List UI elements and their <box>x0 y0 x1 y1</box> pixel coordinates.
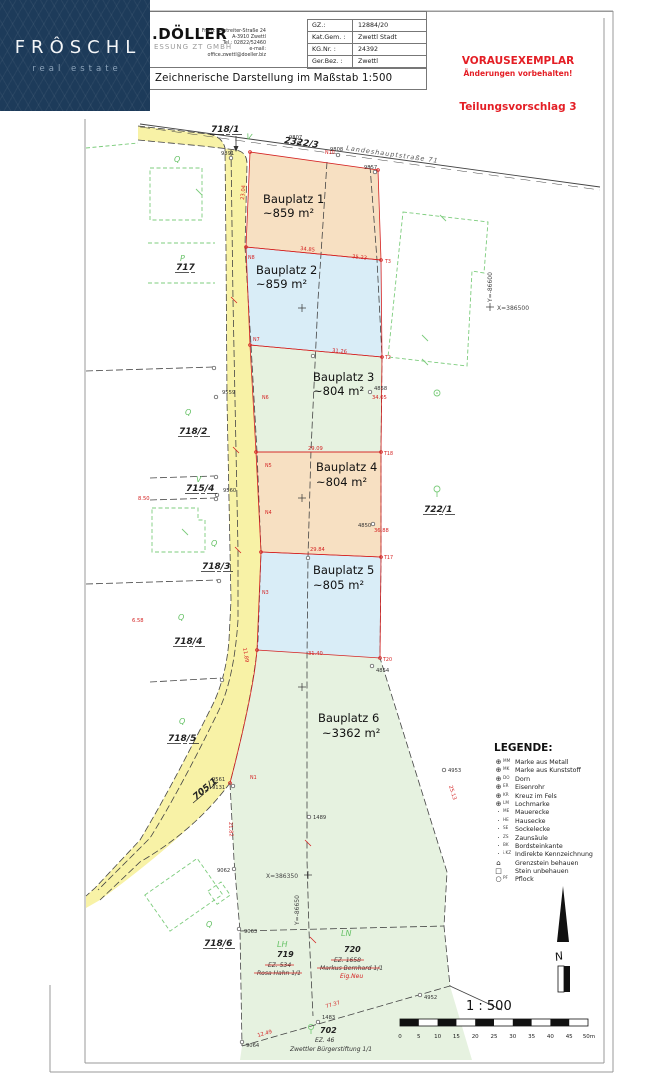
froeschl-logo: FRÔSCHL real estate <box>0 0 150 111</box>
tick-40: 40 <box>547 1034 554 1040</box>
tick-30: 30 <box>509 1034 516 1040</box>
ez-719: EZ. 534 <box>268 962 291 969</box>
cadastral-map: Landeshauptstraße 71 Bauplatz 1 ~859 m² … <box>0 0 663 1080</box>
legend-item: ⊕KRKreuz im Fels <box>494 792 619 800</box>
legend-label: Sockelecke <box>515 826 550 833</box>
legend-title: LEGENDE: <box>494 742 619 754</box>
pt-1489: 1489 <box>313 815 326 821</box>
npt-n5: N5 <box>265 463 272 469</box>
legend-code: ME <box>503 808 515 813</box>
fence-post-icon: · <box>494 834 503 842</box>
plot1-area: ~859 m² <box>263 206 314 220</box>
pt-4953: 4953 <box>448 768 461 774</box>
legend-item: ·ZSZaunsäule <box>494 834 619 842</box>
sheet-top-line <box>426 11 613 12</box>
legend-label: Grenzstein behauen <box>515 860 578 867</box>
plot6-name: Bauplatz 6 <box>318 711 379 725</box>
legend-item: ⊕DODorn <box>494 775 619 783</box>
npt-n4: N4 <box>265 510 272 516</box>
corner-socle-icon: · <box>494 825 503 833</box>
npt-n3: N3 <box>262 590 269 596</box>
marker-hole-icon: ⊕ <box>494 800 503 808</box>
legend-label: Kreuz im Fels <box>515 793 557 800</box>
veg-q4: Q <box>178 613 184 622</box>
pt-9560: 9560 <box>223 488 236 494</box>
veg-q1: Q <box>174 155 180 164</box>
table-row: GZ.: 12884/20 <box>308 20 427 32</box>
legend-label: Marke aus Kunststoff <box>515 767 581 774</box>
tick-15: 15 <box>453 1034 460 1040</box>
parcel-718-1: 718/1 <box>211 125 239 135</box>
pt-9131: 9131 <box>212 785 225 791</box>
dim-25-13: 25.13 <box>447 785 457 801</box>
legend-item: ⊕EREisenrohr <box>494 783 619 791</box>
corner-wall-icon: · <box>494 808 503 816</box>
veg-lh: LH <box>277 940 287 949</box>
dim-8-50: 8.50 <box>138 496 150 502</box>
legend-item: ⊕LMLochmarke <box>494 800 619 808</box>
plot5-area: ~805 m² <box>313 578 364 592</box>
marker-spike-icon: ⊕ <box>494 775 503 783</box>
dim-36-88: 36.88 <box>374 528 389 534</box>
plot4-name: Bauplatz 4 <box>316 460 377 474</box>
legend-item: ·MEMauerecke <box>494 808 619 816</box>
parcel-720: 720 <box>344 945 361 954</box>
legend-code: DO <box>503 775 515 780</box>
legend-label: Bordsteinkante <box>515 843 563 850</box>
title-block: .DÖLLER ESSUNG ZT GMBH Franz Forstreiter… <box>150 11 427 90</box>
pt-4952: 4952 <box>424 995 437 1001</box>
north-arrow-icon: N <box>553 886 570 992</box>
pt-9062: 9062 <box>217 868 230 874</box>
dim-21-82: 21.82 <box>227 822 234 837</box>
marker-pipe-icon: ⊕ <box>494 783 503 791</box>
legend-code: BK <box>503 842 515 847</box>
stamp-line1: VORAUSEXEMPLAR <box>443 55 593 67</box>
legend-code: ER <box>503 783 515 788</box>
veg-q2: Q <box>185 408 191 417</box>
legend-item: ·i.KZIndirekte Kennzeichnung <box>494 850 619 858</box>
pt-9891: 9891 <box>221 151 234 157</box>
parcel-722-1: 722/1 <box>424 505 452 515</box>
legend-code: ZS <box>503 834 515 839</box>
table-row: Kat.Gem. : Zwettl Stadt <box>308 32 427 44</box>
tick-25: 25 <box>491 1034 498 1040</box>
pt-9561: 9561 <box>212 777 225 783</box>
marker-metal-icon: ⊕ <box>494 758 503 766</box>
legend-label: Dorn <box>515 776 530 783</box>
pt-9559: 9559 <box>222 390 235 396</box>
company-address: Franz Forstreiter-Straße 24 A-3910 Zwett… <box>194 29 266 59</box>
pt-9857: 9857 <box>364 165 377 171</box>
pt-9807: 9807 <box>289 135 302 141</box>
parcel-718-3: 718/3 <box>202 562 230 572</box>
legend-code: MM <box>503 758 515 763</box>
owner-719: Rosa Hahn 1/1 <box>257 970 301 977</box>
pt-9063: 9063 <box>244 929 257 935</box>
corner-house-icon: · <box>494 817 503 825</box>
field-label-gz: GZ.: <box>308 20 353 31</box>
house-718-6-icon <box>145 855 230 935</box>
parcel-719: 719 <box>277 950 294 959</box>
legend-code: SE <box>503 825 515 830</box>
legend-code: KR <box>503 792 515 797</box>
veg-q5: Q <box>179 717 185 726</box>
parcel-717: 717 <box>176 263 196 273</box>
curb-edge-icon: · <box>494 842 503 850</box>
npt-n7: N7 <box>253 337 260 343</box>
npt-n10: N10 <box>325 150 335 156</box>
plot2-area: ~859 m² <box>256 277 307 291</box>
legend-code: LM <box>503 800 515 805</box>
north-letter: N <box>553 949 564 964</box>
owner-702: Zwettler Bürgerstiftung 1/1 <box>289 1046 372 1053</box>
tpt-t20: T20 <box>382 657 392 663</box>
logo-tagline: real estate <box>28 64 122 74</box>
legend-code: HE <box>503 817 515 822</box>
legend-item: ⊕MMMarke aus Metall <box>494 758 619 766</box>
dim-34-05: 34.05 <box>372 395 387 401</box>
legend-item: ·BKBordsteinkante <box>494 842 619 850</box>
parcel-718-5: 718/5 <box>168 734 196 744</box>
legend-item: □Stein unbehauen <box>494 867 619 875</box>
parcel-718-4: 718/4 <box>174 637 202 647</box>
npt-n6: N6 <box>262 395 269 401</box>
legend-item: ⌂Grenzstein behauen <box>494 859 619 867</box>
scale-title: 1 : 500 <box>466 999 512 1014</box>
rough-stone-icon: □ <box>494 867 503 875</box>
veg-v1: V <box>196 475 202 484</box>
pt-4858: 4858 <box>374 386 387 392</box>
tpt-t3: T3 <box>384 259 391 265</box>
owner-720-new: Eig.Neu <box>340 973 363 980</box>
plot3-name: Bauplatz 3 <box>313 370 374 384</box>
veg-q6: Q <box>206 920 212 929</box>
legend-item: ·HEHausecke <box>494 817 619 825</box>
boundary-stone-icon: ⌂ <box>494 859 503 867</box>
address-line4: e-mail: office.zwettl@doeller.biz <box>194 47 266 59</box>
veg-q3: Q <box>211 539 217 548</box>
tpt-t17: T17 <box>383 555 393 561</box>
tick-20: 20 <box>472 1034 479 1040</box>
legend-label: Indirekte Kennzeichnung <box>515 851 593 858</box>
plot1-name: Bauplatz 1 <box>263 192 324 206</box>
wooden-peg-icon: ○ <box>494 875 503 883</box>
legend-label: Marke aus Metall <box>515 759 568 766</box>
drawing-subtitle: Zeichnerische Darstellung im Maßstab 1:5… <box>150 67 426 89</box>
veg-p: P <box>180 254 185 263</box>
pt-4850: 4850 <box>358 523 371 529</box>
field-value-gz: 12884/20 <box>353 20 427 31</box>
npt-n8: N8 <box>248 255 255 261</box>
coord-y2: Y=-86650 <box>294 895 301 926</box>
plot4-area: ~804 m² <box>316 475 367 489</box>
legend-code: PF <box>503 875 515 880</box>
plot3-area: ~804 m² <box>313 384 364 398</box>
plot5-name: Bauplatz 5 <box>313 563 374 577</box>
dim-29-09: 29.09 <box>308 446 323 452</box>
field-value-katgem: Zwettl Stadt <box>353 32 427 43</box>
dim-29-84: 29.84 <box>310 547 326 553</box>
legend-label: Pflock <box>515 876 534 883</box>
logo-brand: FRÔSCHL <box>9 37 142 58</box>
legend-code: i.KZ <box>503 850 515 855</box>
owner-720: Markus Bernhard 1/1 <box>320 965 383 972</box>
legend-item: ·SESockelecke <box>494 825 619 833</box>
red-notices: VORAUSEXEMPLAR Änderungen vorbehalten! T… <box>443 55 593 113</box>
dim-6-58: 6.58 <box>132 618 144 624</box>
field-label-katgem: Kat.Gem. : <box>308 32 353 43</box>
legend-item: ○PFPflock <box>494 875 619 883</box>
table-row: KG.Nr. : 24392 <box>308 44 427 56</box>
ez-720: EZ. 1658 <box>334 957 361 964</box>
pt-1483: 1483 <box>322 1015 335 1021</box>
parcel-718-2: 718/2 <box>179 427 207 437</box>
veg-ln: LN <box>341 929 351 938</box>
veg-v2: V <box>246 132 253 142</box>
indirect-mark-icon: · <box>494 850 503 858</box>
marker-cross-icon: ⊕ <box>494 792 503 800</box>
tick-35: 35 <box>528 1034 535 1040</box>
field-label-kgnr: KG.Nr. : <box>308 44 353 55</box>
parcel-715-4: 715/4 <box>186 484 214 494</box>
field-value-kgnr: 24392 <box>353 44 427 55</box>
legend-label: Hausecke <box>515 818 546 825</box>
legend-label: Zaunsäule <box>515 835 548 842</box>
legend-label: Stein unbehauen <box>515 868 569 875</box>
plot2-name: Bauplatz 2 <box>256 263 317 277</box>
parcel-702: 702 <box>320 1026 337 1035</box>
info-table: GZ.: 12884/20 Kat.Gem. : Zwettl Stadt KG… <box>307 19 427 69</box>
coord-x2: X=386350 <box>266 873 298 880</box>
survey-plan-page: { "logo":{"brand":"FRÔSCHL","tagline":"r… <box>0 0 663 1080</box>
parcel-718-6: 718/6 <box>204 939 232 949</box>
legend-code: MK <box>503 766 515 771</box>
coord-x1: X=386500 <box>497 305 529 312</box>
pt-9064: 9064 <box>246 1043 260 1049</box>
ez-702: EZ. 46 <box>315 1037 335 1044</box>
pt-4854: 4854 <box>376 668 390 674</box>
legend-label: Eisenrohr <box>515 784 545 791</box>
tpt-t2: T2 <box>384 355 391 361</box>
legend-label: Lochmarke <box>515 801 550 808</box>
npt-n1: N1 <box>250 775 257 781</box>
tpt-t18: T18 <box>383 451 393 457</box>
dim-31-40: 31.40 <box>308 651 323 657</box>
tick-5: 5 <box>417 1034 421 1040</box>
legend-block: LEGENDE: ⊕MMMarke aus Metall ⊕MKMarke au… <box>494 742 619 884</box>
stamp-line2: Änderungen vorbehalten! <box>443 69 593 78</box>
tick-50m: 50m <box>583 1034 595 1040</box>
marker-plastic-icon: ⊕ <box>494 766 503 774</box>
legend-label: Mauerecke <box>515 809 549 816</box>
legend-item: ⊕MKMarke aus Kunststoff <box>494 766 619 774</box>
proposal-title: Teilungsvorschlag 3 <box>443 101 593 113</box>
tick-10: 10 <box>434 1034 441 1040</box>
tick-45: 45 <box>566 1034 573 1040</box>
plot6-area: ~3362 m² <box>322 726 380 740</box>
coord-y1: Y=-86600 <box>487 272 494 303</box>
tick-0: 0 <box>398 1034 402 1040</box>
